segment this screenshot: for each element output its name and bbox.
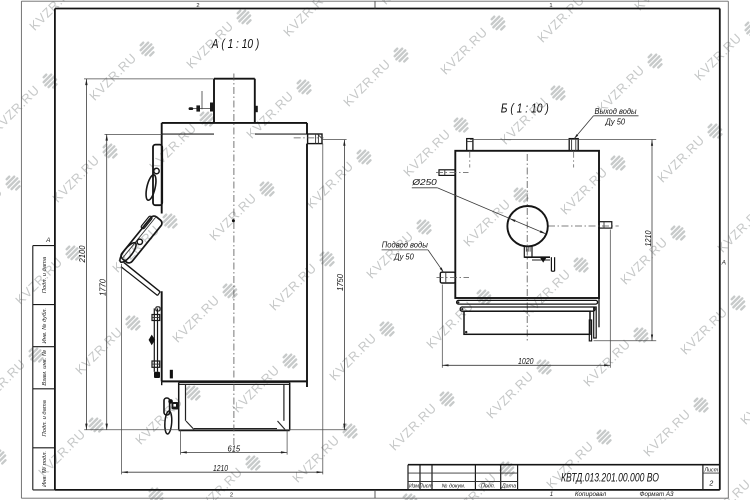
svg-text:1210: 1210 xyxy=(213,464,229,473)
svg-text:Б ( 1 : 10 ): Б ( 1 : 10 ) xyxy=(501,101,549,115)
svg-text:Взам. инв. №: Взам. инв. № xyxy=(42,350,48,386)
svg-text:Выход воды: Выход воды xyxy=(595,106,638,116)
svg-text:2: 2 xyxy=(230,492,233,498)
svg-text:№ докум.: № докум. xyxy=(442,484,466,490)
svg-text:1020: 1020 xyxy=(518,357,534,366)
svg-text:Ду 50: Ду 50 xyxy=(393,251,414,261)
svg-text:Подп. и дата: Подп. и дата xyxy=(42,399,48,436)
svg-text:Подп.: Подп. xyxy=(481,484,495,490)
svg-text:КВТД.013.201.00.000 ВО: КВТД.013.201.00.000 ВО xyxy=(561,471,659,485)
svg-text:Лист: Лист xyxy=(703,468,718,474)
svg-text:Копировал: Копировал xyxy=(575,491,607,498)
svg-text:Подп. и дата: Подп. и дата xyxy=(42,256,48,293)
svg-text:1770: 1770 xyxy=(99,278,108,296)
svg-text:Инв. № подл.: Инв. № подл. xyxy=(42,451,48,487)
svg-text:Лист: Лист xyxy=(418,484,433,490)
svg-text:Ø250: Ø250 xyxy=(411,177,437,187)
svg-text:2: 2 xyxy=(196,3,199,9)
svg-text:Подвод воды: Подвод воды xyxy=(382,239,429,249)
svg-text:1210: 1210 xyxy=(644,230,653,247)
svg-text:Изм: Изм xyxy=(409,484,419,490)
svg-text:А: А xyxy=(721,260,726,267)
svg-text:Формат А3: Формат А3 xyxy=(640,491,674,498)
svg-text:1750: 1750 xyxy=(336,273,345,291)
svg-text:2: 2 xyxy=(708,481,713,488)
svg-text:Ду 50: Ду 50 xyxy=(605,116,626,126)
svg-text:2100: 2100 xyxy=(78,245,87,264)
svg-text:А ( 1 : 10 ): А ( 1 : 10 ) xyxy=(211,37,259,51)
svg-text:Инв. № дубл.: Инв. № дубл. xyxy=(42,308,48,344)
svg-text:1: 1 xyxy=(549,3,552,9)
svg-text:1: 1 xyxy=(550,491,553,498)
svg-text:А: А xyxy=(45,237,50,244)
svg-text:Дата: Дата xyxy=(501,484,516,490)
